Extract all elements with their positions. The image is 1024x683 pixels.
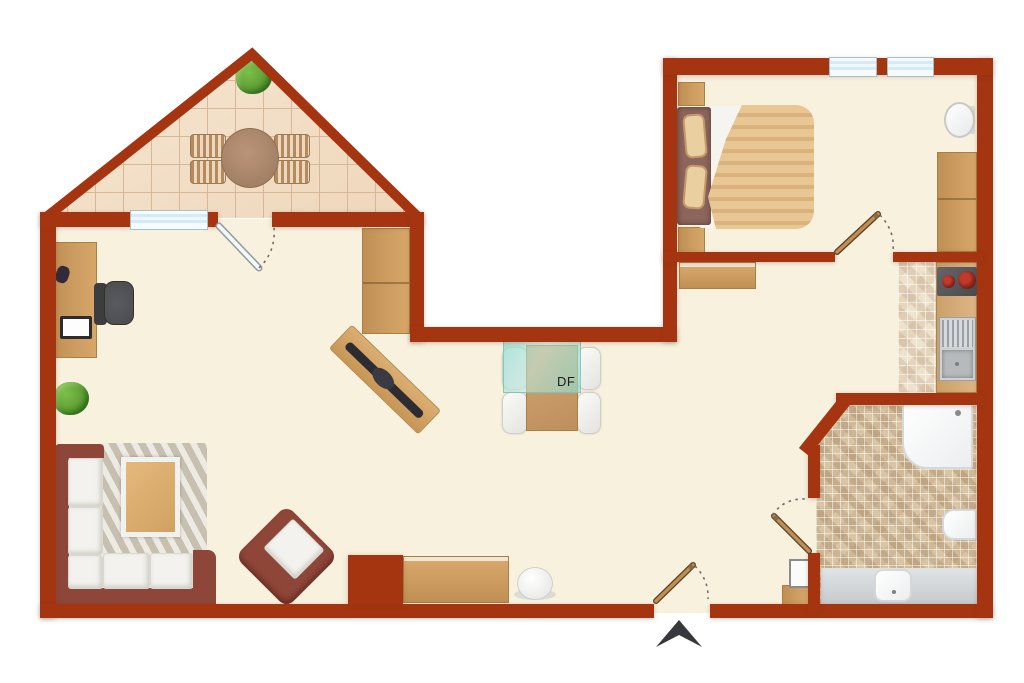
wall-left: [40, 212, 56, 618]
conservatory-chair: [274, 160, 310, 184]
sofa-cushion: [68, 555, 103, 589]
sofa-cushion: [103, 553, 150, 589]
wall-bottom-east: [710, 604, 993, 618]
window-bedroom-1: [829, 57, 877, 77]
stove-burner: [958, 271, 976, 289]
wall-bedroom-top: [663, 58, 993, 75]
wall-bottom-west: [40, 604, 654, 618]
pillow: [682, 164, 708, 210]
window-conservatory: [130, 210, 208, 230]
wardrobe-divider: [938, 198, 976, 200]
sofa-backrest-left: [54, 444, 69, 606]
wall-bedroom-bottom-a: [663, 252, 835, 262]
shower-drain: [955, 410, 961, 416]
stove-burner: [942, 275, 955, 288]
shelf-divider: [363, 282, 409, 284]
office-chair-seat: [104, 281, 134, 325]
coffee-table: [121, 457, 180, 537]
wall-hall-top: [410, 327, 677, 342]
round-table: [221, 128, 279, 188]
dining-chair: [502, 392, 528, 434]
wall-bedroom-bottom-b: [893, 252, 983, 262]
wardrobe-bedroom: [937, 152, 977, 252]
floorplan-canvas: DF: [0, 0, 1024, 683]
hall-cabinet: [782, 585, 809, 605]
sink-drain: [955, 362, 959, 366]
floor-vase: [517, 567, 553, 600]
wall-mirror: [944, 102, 975, 138]
sofa-armrest-top: [54, 444, 104, 458]
sink-drainer: [942, 320, 973, 347]
window-bedroom-2: [887, 57, 934, 77]
sofa-cushion: [68, 458, 103, 507]
sofa-armrest-right: [193, 550, 216, 606]
conservatory-chair: [274, 134, 310, 158]
desk-monitor: [60, 316, 92, 339]
dining-chair: [577, 392, 601, 434]
sink-basin: [942, 350, 973, 378]
bedroom-cabinet-bottom: [678, 227, 705, 253]
bedroom-cabinet-top: [678, 82, 705, 106]
washbasin: [874, 569, 912, 602]
sideboard-bottom: [403, 556, 509, 603]
sofa-cushion: [68, 507, 103, 555]
toilet: [942, 509, 977, 540]
entrance-arrow-icon: [656, 620, 702, 647]
wall-right: [977, 58, 993, 618]
desk: [52, 242, 97, 358]
chimney-block: [348, 555, 403, 604]
wall-living-top-c: [272, 212, 424, 227]
hall-sideboard: [679, 262, 756, 289]
shower-tray: [902, 398, 973, 469]
wall-bathroom-left-a: [808, 445, 820, 498]
wall-living-top-a: [40, 212, 130, 227]
wall-bedroom-left: [663, 58, 677, 342]
radiator: [789, 559, 810, 588]
entrance-threshold: [654, 604, 710, 613]
kitchen-tiled-floor: [898, 262, 938, 393]
skylight-label: DF: [557, 374, 575, 389]
wall-bathroom-left-b: [808, 553, 820, 611]
wall-living-east: [410, 212, 424, 342]
pillow: [682, 113, 708, 159]
basin-drain: [892, 590, 896, 594]
sofa-cushion: [150, 553, 193, 589]
wall-bathroom-top: [836, 393, 985, 405]
shelf-east-wall: [362, 228, 410, 334]
